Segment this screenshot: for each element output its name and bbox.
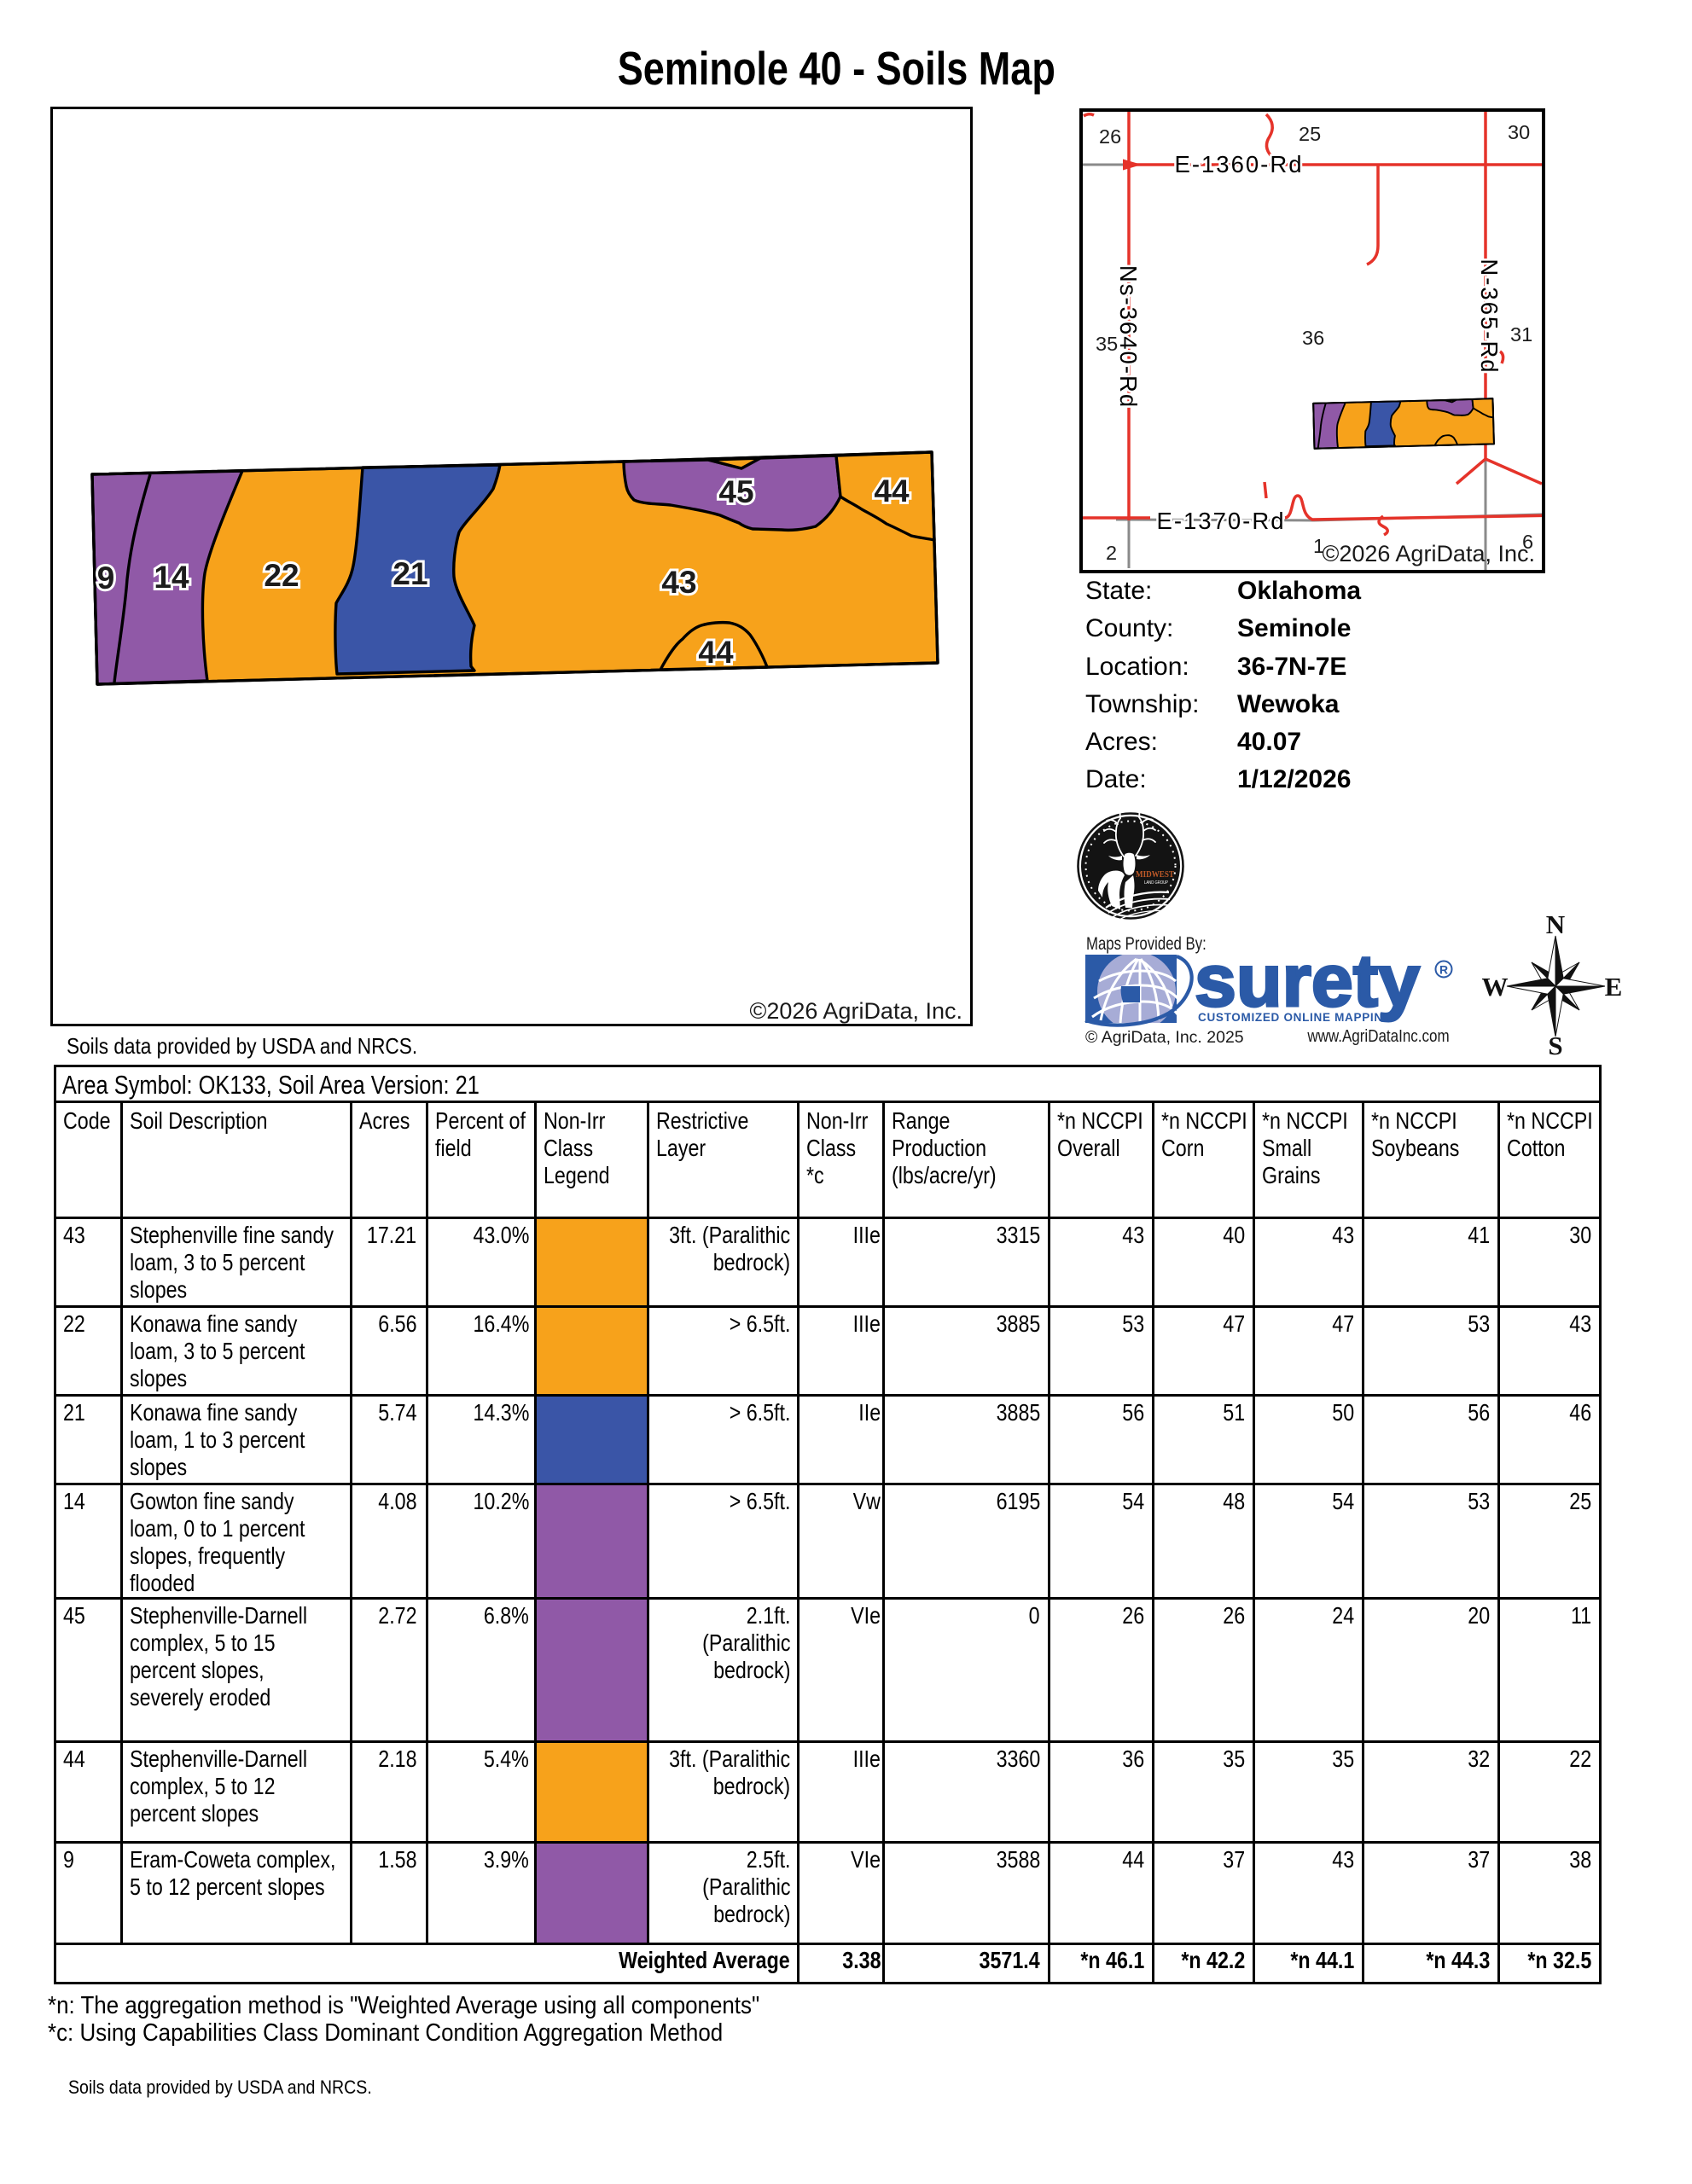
svg-text:MIDWEST: MIDWEST — [1136, 869, 1175, 880]
svg-text:N: N — [1546, 909, 1565, 939]
svg-text:S: S — [1548, 1031, 1562, 1060]
svg-text:W: W — [1482, 972, 1509, 1002]
svg-text:LAND GROUP: LAND GROUP — [1144, 880, 1168, 886]
svg-text:E: E — [1605, 972, 1623, 1002]
svg-text:CUSTOMIZED ONLINE MAPPING: CUSTOMIZED ONLINE MAPPING — [1198, 1011, 1393, 1024]
svg-text:R: R — [1439, 963, 1448, 977]
